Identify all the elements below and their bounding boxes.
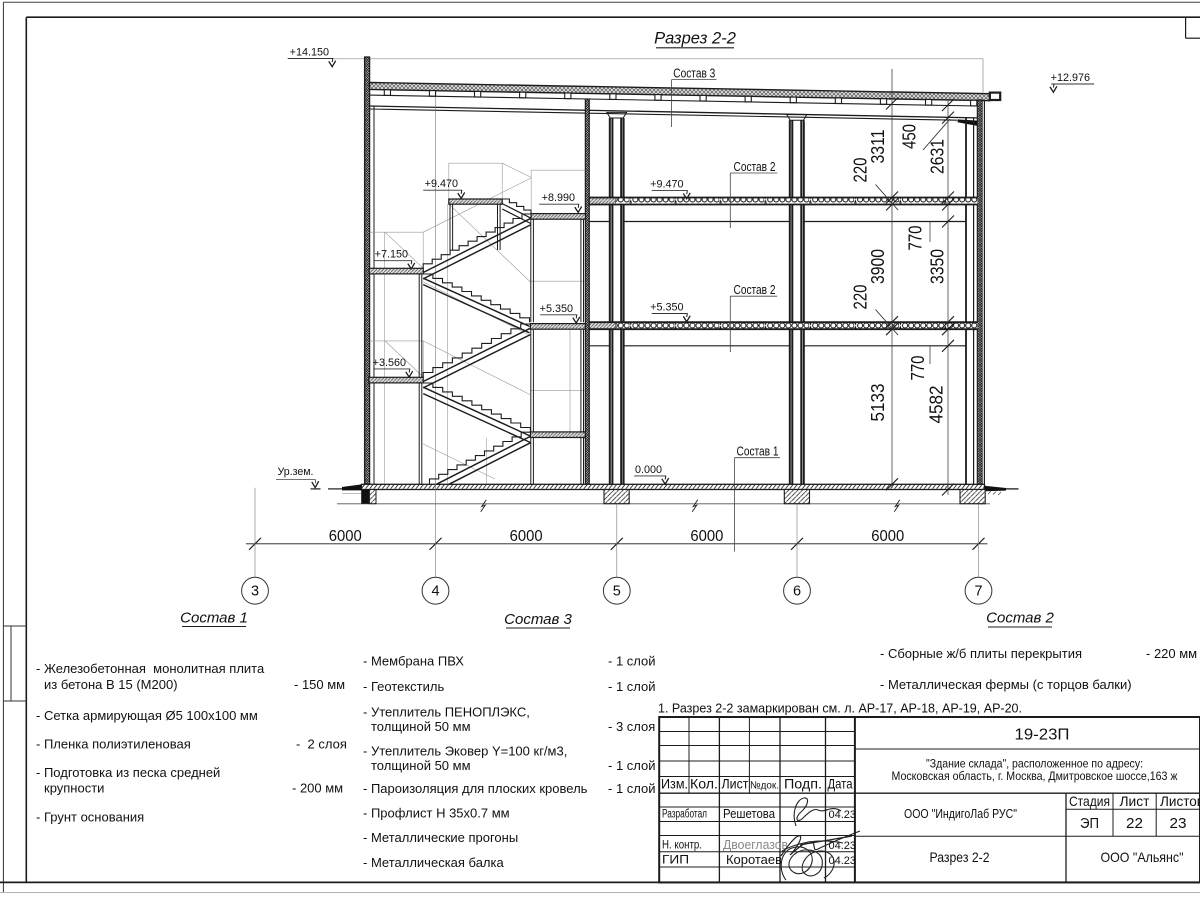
svg-text:толщиной 50 мм: толщиной 50 мм [371, 758, 471, 773]
svg-text:- 1 слой: - 1 слой [608, 679, 656, 694]
svg-text:Разрез 2-2: Разрез 2-2 [930, 850, 990, 865]
svg-text:220: 220 [851, 285, 871, 310]
svg-text:крупности: крупности [44, 781, 104, 796]
svg-text:ООО "ИндигоЛаб РУС": ООО "ИндигоЛаб РУС" [904, 806, 1017, 821]
svg-text:+9.470: +9.470 [425, 178, 458, 190]
svg-text:- 200 мм: - 200 мм [292, 781, 343, 796]
svg-text:Коротаев: Коротаев [726, 853, 782, 867]
svg-text:6000: 6000 [871, 528, 904, 545]
svg-text:770: 770 [906, 226, 926, 251]
svg-text:04.23: 04.23 [829, 809, 857, 821]
svg-text:Состав 2: Состав 2 [734, 159, 776, 174]
svg-text:ЭП: ЭП [1080, 816, 1099, 832]
svg-text:+5.350: +5.350 [540, 303, 573, 315]
svg-text:5133: 5133 [868, 384, 888, 422]
svg-text:1. Разрез 2-2 замаркирован см.: 1. Разрез 2-2 замаркирован см. л. АР-17,… [658, 702, 1022, 716]
svg-text:- 1 слой: - 1 слой [608, 781, 656, 796]
svg-text:Подп.: Подп. [784, 776, 822, 792]
svg-text:- Профлист Н 35х0.7 мм: - Профлист Н 35х0.7 мм [363, 806, 510, 821]
svg-text:+8.990: +8.990 [542, 192, 575, 204]
svg-text:220: 220 [851, 158, 871, 183]
svg-text:- 150 мм: - 150 мм [294, 677, 345, 692]
svg-text:+14.150: +14.150 [290, 47, 329, 59]
svg-text:6000: 6000 [510, 528, 543, 545]
svg-text:- Пароизоляция для плоских кро: - Пароизоляция для плоских кровель [363, 781, 588, 796]
svg-text:Ур.зем.: Ур.зем. [278, 466, 314, 478]
svg-text:Изм.: Изм. [661, 776, 688, 792]
svg-text:Состав 2: Состав 2 [734, 282, 776, 297]
svg-text:- Металлическая балка: - Металлическая балка [363, 855, 504, 870]
svg-text:Состав 3: Состав 3 [504, 611, 572, 628]
svg-text:№док.: №док. [750, 780, 779, 792]
svg-text:+3.560: +3.560 [373, 357, 406, 369]
svg-text:- Подготовка из песка средней: - Подготовка из песка средней [36, 765, 220, 780]
svg-text:+5.350: +5.350 [650, 302, 683, 314]
svg-text:3350: 3350 [928, 249, 948, 284]
svg-text:+12.976: +12.976 [1051, 72, 1090, 84]
svg-text:- 1 слой: - 1 слой [608, 758, 656, 773]
svg-text:0.000: 0.000 [635, 464, 662, 476]
svg-text:толщиной 50 мм: толщиной 50 мм [371, 719, 471, 734]
svg-text:3900: 3900 [868, 249, 888, 284]
svg-text:из бетона В 15 (М200): из бетона В 15 (М200) [44, 677, 178, 692]
svg-text:- 3 слоя: - 3 слоя [608, 719, 655, 734]
svg-text:+9.470: +9.470 [650, 179, 683, 191]
svg-text:Решетова: Решетова [723, 807, 775, 821]
svg-text:Н. контр.: Н. контр. [662, 840, 702, 852]
svg-text:- Сборные ж/б плиты перекрытия: - Сборные ж/б плиты перекрытия [880, 646, 1082, 661]
svg-text:- Мембрана ПВХ: - Мембрана ПВХ [363, 654, 464, 669]
svg-text:23: 23 [1170, 816, 1187, 832]
svg-text:Разработал: Разработал [662, 809, 707, 821]
svg-text:- Утеплитель ПЕНОПЛЭКС,: - Утеплитель ПЕНОПЛЭКС, [363, 705, 530, 720]
svg-text:Лист: Лист [1120, 794, 1151, 809]
svg-text:4: 4 [431, 584, 439, 600]
svg-text:4582: 4582 [927, 386, 947, 424]
svg-text:3: 3 [251, 584, 259, 600]
svg-text:6: 6 [793, 584, 801, 600]
svg-text:6000: 6000 [329, 528, 362, 545]
svg-text:- 220 мм: - 220 мм [1146, 646, 1197, 661]
svg-text:- Геотекстиль: - Геотекстиль [363, 679, 444, 694]
svg-text:- Утеплитель Эковер Y=100 кг/м: - Утеплитель Эковер Y=100 кг/м3, [363, 744, 567, 759]
svg-text:- Сетка армирующая Ø5 100х100: - Сетка армирующая Ø5 100х100 мм [36, 708, 258, 723]
svg-text:2631: 2631 [928, 139, 948, 174]
svg-text:6000: 6000 [690, 528, 723, 545]
svg-text:Стадия: Стадия [1069, 794, 1110, 809]
svg-text:- Металлическая фермы (с торцо: - Металлическая фермы (с торцов балки) [880, 677, 1132, 692]
svg-text:- Металлические прогоны: - Металлические прогоны [363, 830, 518, 845]
svg-text:5: 5 [613, 584, 621, 600]
svg-text:- Железобетонная монолитная п: - Железобетонная монолитная плита [36, 661, 265, 676]
svg-text:Лист: Лист [722, 776, 750, 792]
svg-text:770: 770 [908, 356, 928, 381]
svg-text:3311: 3311 [868, 130, 888, 164]
svg-text:Разрез 2-2: Разрез 2-2 [654, 30, 736, 48]
svg-text:ООО "Альянс": ООО "Альянс" [1101, 849, 1184, 865]
svg-text:ГИП: ГИП [662, 855, 689, 867]
svg-text:450: 450 [900, 124, 920, 149]
svg-text:Московская область, г. Москва,: Московская область, г. Москва, Дмитровск… [892, 769, 1179, 783]
svg-text:19-23П: 19-23П [1015, 727, 1070, 744]
svg-text:+7.150: +7.150 [375, 249, 408, 261]
svg-text:Двоеглазов: Двоеглазов [723, 838, 788, 852]
svg-text:Состав 1: Состав 1 [180, 610, 248, 627]
svg-text:7: 7 [974, 584, 982, 600]
svg-text:Кол.: Кол. [690, 776, 718, 792]
svg-text:- Пленка полиэтиленовая: - Пленка полиэтиленовая [36, 737, 191, 752]
svg-text:- 1 слой: - 1 слой [608, 654, 656, 669]
svg-text:Листов: Листов [1160, 794, 1200, 809]
svg-text:Состав 3: Состав 3 [673, 65, 715, 80]
svg-text:Дата: Дата [828, 776, 853, 792]
svg-text:- 2 слоя: - 2 слоя [296, 737, 347, 752]
svg-text:Состав 1: Состав 1 [737, 444, 779, 459]
svg-text:22: 22 [1126, 816, 1143, 832]
svg-text:Состав 2: Состав 2 [986, 610, 1054, 627]
svg-text:- Грунт основания: - Грунт основания [36, 810, 144, 825]
